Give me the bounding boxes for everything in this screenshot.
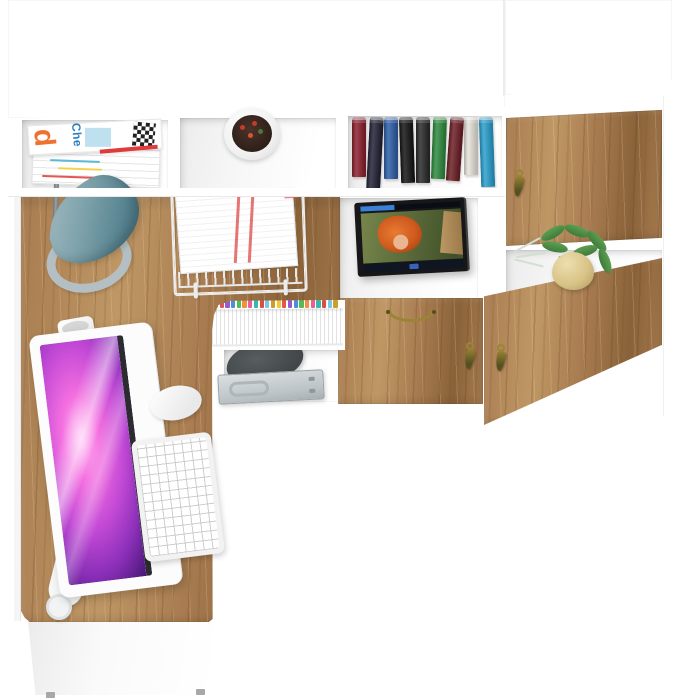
tray-leg — [283, 279, 288, 295]
plant-blade-icon — [514, 258, 544, 267]
brass-arc-handle — [388, 300, 434, 322]
brass-drop-handle — [494, 344, 508, 374]
book-spine — [416, 117, 430, 183]
potted-plant — [512, 226, 630, 294]
handle-screw-icon — [386, 310, 390, 314]
case-handle — [229, 380, 270, 397]
flower-icon — [248, 133, 253, 138]
handle-screw-icon — [432, 310, 436, 314]
book-spine — [431, 117, 447, 179]
keyboard — [131, 432, 225, 563]
folder-tab — [328, 300, 332, 308]
folder-tab — [282, 300, 286, 308]
plant-blade-icon — [516, 252, 546, 258]
book-spine — [446, 117, 464, 182]
folder-tab — [231, 300, 235, 308]
right-side-panel-edge — [663, 96, 664, 416]
open-compartment — [224, 350, 345, 402]
product-render-stage: d Che — [0, 0, 689, 700]
magazine-cover-letter: d — [28, 128, 59, 148]
wall-unit-top-panel-left — [8, 0, 505, 118]
folder-tab — [316, 300, 320, 308]
desk-lamp — [40, 182, 172, 296]
file-folder-shelf — [205, 300, 345, 350]
paper-tray — [170, 188, 308, 297]
folder-tab — [305, 300, 309, 308]
tree-branch — [440, 211, 463, 255]
wall-unit-bottom-edge — [8, 188, 505, 197]
monitor-stand-base — [46, 594, 72, 620]
book-spine — [464, 117, 478, 175]
book-spine — [366, 117, 384, 190]
center-drawer-front — [338, 298, 483, 404]
folder-tab — [322, 300, 326, 308]
magazine-checker-pattern — [132, 122, 156, 148]
flower-pot-soil — [232, 115, 272, 152]
book-spine — [384, 117, 398, 179]
movie-frame — [361, 208, 463, 263]
brass-drop-handle — [463, 342, 477, 372]
tray-leg — [193, 282, 198, 298]
folder-tab — [254, 300, 258, 308]
desk-left-edge — [14, 197, 21, 621]
player-button-icon — [409, 263, 418, 268]
magazine-cover: d Che — [27, 119, 162, 156]
folder-spines — [209, 308, 343, 346]
metal-case — [217, 369, 324, 405]
book-spine — [352, 117, 366, 177]
brass-drop-handle — [512, 169, 526, 200]
folder-tab — [237, 300, 241, 308]
folder-tab — [311, 300, 315, 308]
handle-tassel-icon — [463, 348, 475, 369]
folder-tab — [288, 300, 292, 308]
case-latch-icon — [309, 377, 315, 381]
folder-tab — [294, 300, 298, 308]
books-row — [352, 117, 502, 191]
folder-tab — [299, 300, 303, 308]
furniture-foot — [46, 692, 55, 698]
book-spine — [399, 117, 415, 183]
folder-tab — [248, 300, 252, 308]
plant-leaf-icon — [596, 247, 614, 275]
wall-unit-top-panel-right — [505, 0, 672, 95]
leaf-icon — [258, 129, 263, 134]
book-spine — [479, 117, 495, 187]
case-latch-icon — [309, 389, 315, 393]
magazine-cover-photo — [85, 128, 111, 147]
flower-icon — [240, 125, 245, 130]
flower-pot-top — [224, 108, 280, 160]
magazine-cover-title: Che — [69, 122, 85, 147]
furniture-foot — [196, 689, 205, 695]
handle-tassel-icon — [512, 176, 524, 197]
folder-tab — [333, 300, 337, 308]
media-screen — [354, 197, 470, 277]
folder-tab — [277, 300, 281, 308]
desk-front-panel — [28, 621, 215, 695]
keyboard-keys — [136, 437, 219, 557]
folder-tab — [260, 300, 264, 308]
folder-tab — [271, 300, 275, 308]
folder-tab — [265, 300, 269, 308]
folder-tab — [242, 300, 246, 308]
flower-icon — [252, 121, 257, 126]
plant-blade-icon — [513, 237, 540, 253]
handle-tassel-icon — [494, 350, 506, 371]
wall-unit-seam — [503, 0, 505, 96]
plant-pot — [552, 252, 594, 290]
player-progress-fill — [360, 205, 394, 212]
